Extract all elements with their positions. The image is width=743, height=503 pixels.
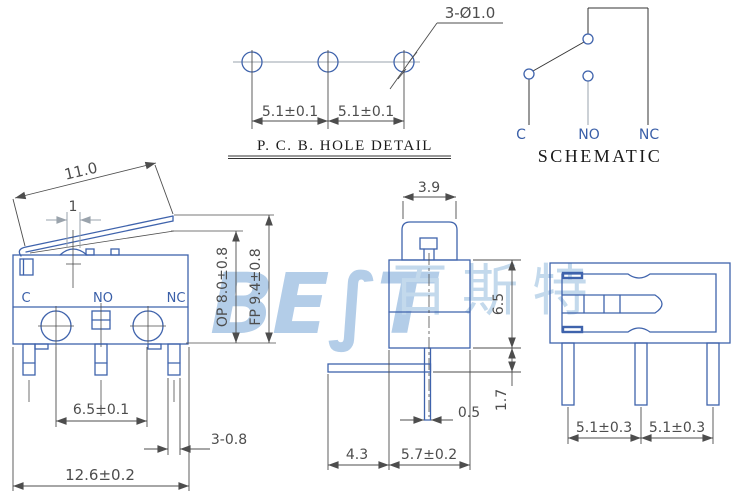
lever-width-text: 3.9 xyxy=(418,180,440,196)
pin-pitch-left-text: 5.1±0.3 xyxy=(576,420,632,436)
pin-common xyxy=(23,344,35,375)
micro-switch-drawing: BE∫T 百斯特 5.1±0.1 5.1±0.1 3-Ø1.0 P. C. B.… xyxy=(0,0,743,503)
bottom-pin-1 xyxy=(562,343,574,405)
pin-width-text: 3-0.8 xyxy=(211,432,247,448)
schematic-label-nc: NC xyxy=(639,127,659,143)
body-height-text: 6.5 xyxy=(491,293,507,315)
technical-drawing-page: BE∫T 百斯特 5.1±0.1 5.1±0.1 3-Ø1.0 P. C. B.… xyxy=(0,0,743,503)
bracket-drop-text: 1.7 xyxy=(494,389,510,411)
fp-height-text: FP 9.4±0.8 xyxy=(248,248,264,325)
depth-dimensions: 4.3 5.7±0.2 xyxy=(328,350,470,470)
contact-pitch-dimension: 6.5±0.1 xyxy=(56,347,147,427)
schematic-title: SCHEMATIC xyxy=(538,146,663,166)
schematic-label-no: NO xyxy=(578,127,600,143)
plunger-profile xyxy=(420,238,437,249)
bottom-pin-3 xyxy=(707,343,719,405)
lever-length-text: 11.0 xyxy=(63,159,100,184)
pin-width-dimension: 3-0.8 xyxy=(144,378,247,455)
side-label-no: NO xyxy=(93,291,113,306)
common-contact xyxy=(524,69,534,79)
bent-terminal-bracket xyxy=(328,364,431,372)
bracket-drop-dimension: 1.7 xyxy=(433,348,521,411)
no-contact xyxy=(583,71,593,81)
body-corner-detail xyxy=(20,259,33,275)
side-label-nc: NC xyxy=(167,291,186,306)
pin-no xyxy=(95,344,107,375)
lever xyxy=(19,216,174,256)
hole-callout-text: 3-Ø1.0 xyxy=(445,4,496,22)
pivot-contact xyxy=(583,34,593,44)
pcb-hole-detail-view: 5.1±0.1 5.1±0.1 3-Ø1.0 P. C. B. HOLE DET… xyxy=(228,4,503,159)
pin-thickness-text: 0.5 xyxy=(458,405,480,421)
side-label-c: C xyxy=(21,291,30,306)
op-height-text: OP 8.0±0.8 xyxy=(215,247,231,327)
hole-callout-leader xyxy=(390,23,503,89)
top-stop-2 xyxy=(111,249,119,255)
bottom-pins xyxy=(562,343,719,405)
pin-thickness-dimension: 0.5 xyxy=(400,405,480,421)
front-pin xyxy=(425,348,431,420)
mount-tab-2 xyxy=(148,344,161,349)
bottom-pin-2 xyxy=(635,343,647,405)
body-width-text: 12.6±0.2 xyxy=(65,466,135,484)
pcb-pitch-left-dim: 5.1±0.1 xyxy=(262,104,318,120)
bracket-length-text: 4.3 xyxy=(346,447,368,463)
schematic-label-c: C xyxy=(516,127,526,143)
lever-width-dimension: 3.9 xyxy=(403,180,456,219)
latch-tab-bottom xyxy=(563,327,582,332)
pin-pitch-right-text: 5.1±0.3 xyxy=(649,420,705,436)
pcb-detail-title: P. C. B. HOLE DETAIL xyxy=(257,138,433,154)
body-width-dimension: 12.6±0.2 xyxy=(13,347,189,491)
op-fp-dimensions: OP 8.0±0.8 FP 9.4±0.8 xyxy=(171,215,276,343)
top-stop-1 xyxy=(86,249,94,255)
plunger-width-text: 1 xyxy=(69,199,78,215)
mount-tab-1 xyxy=(35,344,48,349)
pcb-pitch-right-dim: 5.1±0.1 xyxy=(338,104,394,120)
body-depth-text: 5.7±0.2 xyxy=(401,447,457,463)
plunger-dome xyxy=(60,249,87,255)
schematic-view: C NO NC SCHEMATIC xyxy=(516,8,662,166)
pin-nc xyxy=(168,344,180,375)
contact-pitch-text: 6.5±0.1 xyxy=(73,402,129,418)
pin-pitch-dimensions: 5.1±0.3 5.1±0.3 xyxy=(568,407,713,444)
